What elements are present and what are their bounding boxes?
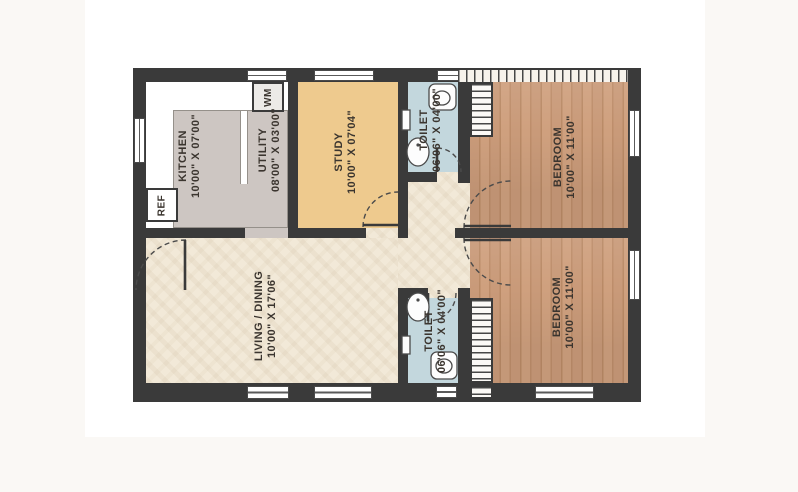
toilet-bottom-sink-tap — [416, 298, 419, 301]
bedroom-top-label: BEDROOM 10'00" X 11'00" — [552, 115, 578, 198]
toilet-bottom-dims: 06'06" X 04'00" — [436, 289, 449, 373]
bedroom-top-door-arc — [464, 181, 511, 228]
study-name: STUDY — [333, 132, 346, 171]
utility-dims: 08'00" X 03'00" — [270, 108, 283, 192]
bedroom-bottom-name: BEDROOM — [551, 277, 564, 337]
kitchen-dims: 10'00" X 07'00" — [190, 114, 203, 198]
floor-plan: REF WM — [0, 0, 798, 492]
living-dining-name: LIVING / DINING — [253, 271, 266, 361]
doors-fixtures-overlay — [0, 0, 798, 492]
study-dims: 10'00" X 07'04" — [346, 110, 359, 194]
bedroom-top-dims: 10'00" X 11'00" — [565, 115, 578, 198]
utility-name: UTILITY — [257, 128, 270, 172]
toilet-bottom-shelf — [402, 336, 410, 354]
toilet-bottom-label: TOILET 06'06" X 04'00" — [423, 289, 449, 373]
toilet-top-shelf — [402, 110, 410, 130]
toilet-top-name: TOILET — [418, 109, 431, 150]
living-dining-label: LIVING / DINING 10'00" X 17'06" — [253, 271, 279, 361]
bedroom-bottom-door-arc — [464, 238, 511, 285]
toilet-top-dims: 06'06" X 04'00" — [431, 88, 444, 172]
living-dining-dims: 10'00" X 17'06" — [266, 274, 279, 358]
toilet-top-label: TOILET 06'06" X 04'00" — [418, 88, 444, 172]
utility-label: UTILITY 08'00" X 03'00" — [257, 108, 283, 192]
bedroom-bottom-dims: 10'00" X 11'00" — [564, 265, 577, 348]
main-door-arc — [136, 240, 186, 290]
kitchen-label: KITCHEN 10'00" X 07'00" — [177, 114, 203, 198]
bedroom-top-name: BEDROOM — [552, 127, 565, 187]
toilet-bottom-name: TOILET — [423, 310, 436, 351]
study-label: STUDY 10'00" X 07'04" — [333, 110, 359, 194]
kitchen-name: KITCHEN — [177, 130, 190, 182]
study-door-arc — [363, 192, 398, 227]
bedroom-bottom-label: BEDROOM 10'00" X 11'00" — [551, 265, 577, 348]
